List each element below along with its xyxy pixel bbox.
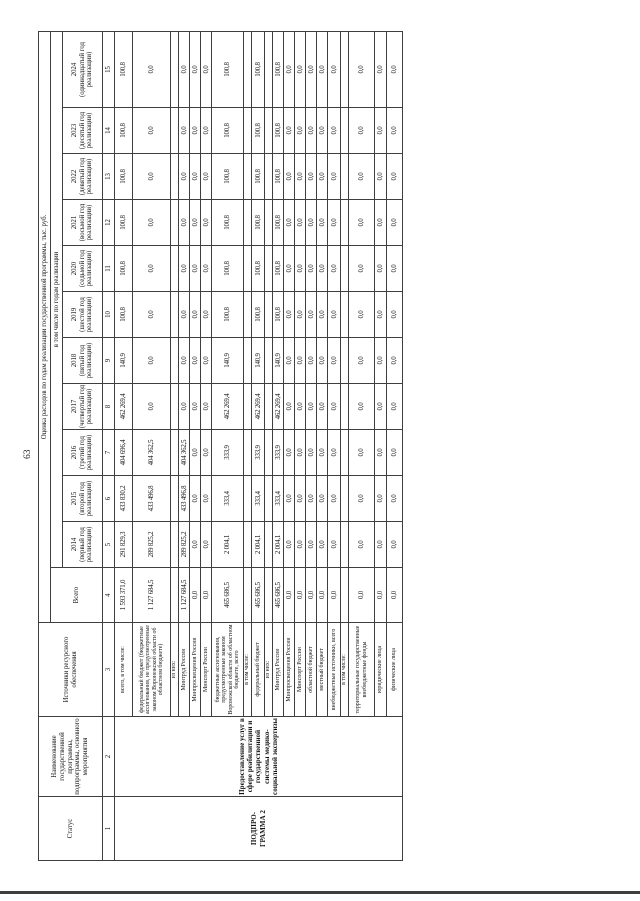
value-cell [244,246,252,292]
value-cell [341,384,349,430]
value-cell: 0,0 [133,338,171,384]
year-header-cell: 2023(десятый год реализации) [63,108,103,154]
column-number-cell: 9 [103,338,115,384]
value-cell: 100,8 [252,108,265,154]
source-label-cell: местный бюджет [317,623,328,717]
column-number-cell: 14 [103,108,115,154]
value-cell: 0,0 [295,108,306,154]
value-cell [244,108,252,154]
table-row: ПОДПРО-ГРАММА 2Предоставление услуг в сф… [115,31,133,860]
value-cell [341,430,349,476]
value-cell: 0,0 [201,200,212,246]
value-cell: 0,0 [306,292,317,338]
value-cell [265,522,273,568]
value-cell: 0,0 [179,154,190,200]
value-cell: 333,4 [252,476,265,522]
value-cell: 0,0 [306,338,317,384]
column-number-cell: 2 [103,717,115,797]
value-cell [265,568,273,623]
value-cell: 0,0 [284,200,295,246]
year-header-cell: 2016(третий год реализации) [63,430,103,476]
value-cell: 0,0 [328,246,341,292]
value-cell [171,108,179,154]
value-cell [244,522,252,568]
value-cell [341,476,349,522]
value-cell: 0,0 [295,338,306,384]
value-cell: 465 686,5 [273,568,284,623]
value-cell: 0,0 [375,108,387,154]
value-cell: 0,0 [349,108,375,154]
value-cell: 0,0 [295,522,306,568]
value-cell: 100,8 [273,292,284,338]
value-cell: 0,0 [328,292,341,338]
value-cell: 140,9 [212,338,244,384]
value-cell: 404 362,5 [133,430,171,476]
value-cell: 0,0 [133,154,171,200]
value-cell: 0,0 [295,154,306,200]
value-cell: 0,0 [284,430,295,476]
column-number-cell: 12 [103,200,115,246]
value-cell: 0,0 [328,200,341,246]
source-label-cell: Минтруд России [179,623,190,717]
value-cell: 0,0 [295,31,306,107]
year-header-cell: 2024(одиннадцатый год реализации) [63,31,103,107]
value-cell: 0,0 [306,476,317,522]
value-cell: 140,9 [115,338,133,384]
value-cell: 0,0 [349,568,375,623]
value-cell: 291 829,3 [115,522,133,568]
value-cell: 100,8 [273,108,284,154]
value-cell: 0,0 [133,31,171,107]
value-cell: 100,8 [273,200,284,246]
value-cell: 100,8 [212,246,244,292]
value-cell: 0,0 [284,522,295,568]
value-cell [265,476,273,522]
value-cell: 2 004,1 [212,522,244,568]
value-cell: 100,8 [115,200,133,246]
value-cell: 333,9 [273,430,284,476]
value-cell: 0,0 [349,200,375,246]
value-cell: 0,0 [317,476,328,522]
value-cell: 0,0 [201,384,212,430]
name-header: Наименование государственной программы, … [39,717,103,797]
source-label-cell: в том числе: [244,623,252,717]
value-cell: 2 004,1 [252,522,265,568]
value-cell: 0,0 [190,246,201,292]
value-cell: 0,0 [179,200,190,246]
value-cell: 289 825,2 [133,522,171,568]
value-cell [244,154,252,200]
value-cell: 0,0 [306,31,317,107]
value-cell: 0,0 [349,31,375,107]
value-cell: 0,0 [349,338,375,384]
source-label-cell: Минтруд России [273,623,284,717]
value-cell: 100,8 [115,108,133,154]
value-cell [171,31,179,107]
value-cell: 465 686,5 [252,568,265,623]
value-cell: 0,0 [375,31,387,107]
value-cell [341,154,349,200]
value-cell: 289 825,2 [179,522,190,568]
year-header-cell: 2017(четвертый год реализации) [63,384,103,430]
value-cell: 0,0 [328,108,341,154]
value-cell: 462 269,4 [115,384,133,430]
value-cell [171,338,179,384]
value-cell: 0,0 [375,200,387,246]
value-cell: 100,8 [212,154,244,200]
value-cell: 0,0 [317,31,328,107]
value-cell: 2 004,1 [273,522,284,568]
source-label-cell: из них: [171,623,179,717]
value-cell: 404 696,4 [115,430,133,476]
value-cell: 100,8 [252,246,265,292]
value-cell: 333,9 [212,430,244,476]
value-cell: 100,8 [212,108,244,154]
value-cell: 0,0 [295,476,306,522]
column-number-cell: 1 [103,797,115,861]
value-cell: 0,0 [190,568,201,623]
value-cell [341,522,349,568]
value-cell: 0,0 [133,108,171,154]
page-bottom-rule [0,891,640,894]
value-cell: 0,0 [317,384,328,430]
value-cell: 0,0 [375,292,387,338]
source-label-cell: из них: [265,623,273,717]
value-cell [341,108,349,154]
value-cell [341,31,349,107]
value-cell: 0,0 [179,246,190,292]
expenses-header: Оценка расходов по годам реализации госу… [39,31,51,622]
value-cell: 0,0 [190,292,201,338]
value-cell: 0,0 [375,338,387,384]
value-cell: 0,0 [284,292,295,338]
value-cell: 100,8 [115,246,133,292]
value-cell: 100,8 [252,292,265,338]
value-cell: 0,0 [375,384,387,430]
value-cell: 0,0 [317,246,328,292]
value-cell: 0,0 [284,31,295,107]
value-cell: 0,0 [295,430,306,476]
value-cell: 0,0 [284,246,295,292]
value-cell [341,292,349,338]
value-cell: 0,0 [201,338,212,384]
value-cell: 0,0 [375,522,387,568]
value-cell: 0,0 [317,292,328,338]
value-cell: 333,4 [273,476,284,522]
value-cell: 0,0 [317,200,328,246]
value-cell: 0,0 [295,200,306,246]
value-cell: 0,0 [349,246,375,292]
including-years-header: в том числе по годам реализации [51,31,63,567]
value-cell [244,476,252,522]
value-cell [341,338,349,384]
value-cell: 0,0 [201,476,212,522]
scanned-page: СтатусНаименование государственной прогр… [0,0,640,901]
value-cell: 462 269,4 [273,384,284,430]
value-cell: 0,0 [387,154,403,200]
source-label-cell: юридические лица [375,623,387,717]
value-cell: 0,0 [201,522,212,568]
value-cell: 0,0 [349,384,375,430]
value-cell [265,200,273,246]
value-cell: 0,0 [306,430,317,476]
status-cell: ПОДПРО-ГРАММА 2 [115,797,403,861]
value-cell: 0,0 [295,292,306,338]
value-cell: 0,0 [317,430,328,476]
year-header-cell: 2019(шестой год реализации) [63,292,103,338]
value-cell [341,246,349,292]
value-cell: 0,0 [284,338,295,384]
value-cell: 0,0 [284,154,295,200]
source-label-cell: областной бюджет [306,623,317,717]
value-cell: 100,8 [115,292,133,338]
value-cell: 462 269,4 [212,384,244,430]
value-cell: 0,0 [349,430,375,476]
value-cell [265,31,273,107]
value-cell: 0,0 [295,246,306,292]
value-cell: 0,0 [201,568,212,623]
value-cell: 0,0 [306,200,317,246]
value-cell: 0,0 [387,31,403,107]
value-cell [171,200,179,246]
value-cell: 0,0 [284,108,295,154]
value-cell: 100,8 [115,31,133,107]
value-cell: 0,0 [306,246,317,292]
column-number-cell: 15 [103,31,115,107]
value-cell: 465 686,5 [212,568,244,623]
value-cell: 100,8 [252,200,265,246]
value-cell: 100,8 [273,246,284,292]
status-header: Статус [39,797,103,861]
program-table: СтатусНаименование государственной прогр… [38,31,403,861]
value-cell: 0,0 [284,476,295,522]
value-cell: 0,0 [201,31,212,107]
value-cell: 0,0 [179,31,190,107]
value-cell: 100,8 [273,31,284,107]
value-cell: 100,8 [252,31,265,107]
value-cell: 0,0 [328,338,341,384]
value-cell: 0,0 [190,154,201,200]
value-cell: 0,0 [328,522,341,568]
value-cell [265,246,273,292]
value-cell: 0,0 [317,154,328,200]
value-cell [265,384,273,430]
value-cell: 0,0 [179,292,190,338]
column-number-cell: 7 [103,430,115,476]
source-label-cell: федеральный бюджет (бюджетные ассигнован… [133,623,171,717]
value-cell: 140,9 [252,338,265,384]
value-cell: 0,0 [328,154,341,200]
value-cell: 0,0 [284,568,295,623]
column-number-cell: 6 [103,476,115,522]
value-cell: 1 127 684,5 [179,568,190,623]
source-label-cell: федеральный бюджет [252,623,265,717]
value-cell [265,108,273,154]
column-number-cell: 5 [103,522,115,568]
value-cell: 0,0 [284,384,295,430]
value-cell: 0,0 [306,568,317,623]
value-cell: 0,0 [349,522,375,568]
value-cell [244,568,252,623]
value-cell [265,430,273,476]
value-cell: 0,0 [387,246,403,292]
value-cell: 433 496,8 [133,476,171,522]
value-cell: 0,0 [190,108,201,154]
source-label-cell: бюджетные ассигнования, предусмотренные … [212,623,244,717]
year-header-cell: 2015(второй год реализации) [63,476,103,522]
value-cell [171,568,179,623]
value-cell: 0,0 [387,522,403,568]
value-cell [171,384,179,430]
value-cell: 1 127 684,5 [133,568,171,623]
value-cell: 0,0 [190,384,201,430]
value-cell: 0,0 [387,200,403,246]
value-cell: 0,0 [349,154,375,200]
value-cell: 0,0 [328,568,341,623]
value-cell: 0,0 [375,246,387,292]
value-cell: 0,0 [190,430,201,476]
value-cell: 0,0 [190,522,201,568]
value-cell: 0,0 [387,108,403,154]
value-cell: 0,0 [306,154,317,200]
program-name-cell: Предоставление услуг в сфере реабилитаци… [115,717,403,797]
value-cell: 0,0 [179,108,190,154]
value-cell: 0,0 [133,384,171,430]
total-header: Всего [51,568,103,623]
value-cell: 100,8 [212,200,244,246]
value-cell [341,568,349,623]
value-cell: 0,0 [375,568,387,623]
source-label-cell: физические лица [387,623,403,717]
value-cell [171,522,179,568]
source-label-cell: Минспорт России [201,623,212,717]
value-cell: 0,0 [349,292,375,338]
year-header-cell: 2018(пятый год реализации) [63,338,103,384]
value-cell [244,200,252,246]
value-cell: 0,0 [133,200,171,246]
value-cell [244,338,252,384]
source-label-cell: внебюджетные источники, всего [328,623,341,717]
value-cell: 0,0 [306,108,317,154]
source-label-cell: всего, в том числе: [115,623,133,717]
value-cell [171,292,179,338]
value-cell: 0,0 [375,430,387,476]
page-number: 63 [23,450,33,460]
column-number-cell: 4 [103,568,115,623]
value-cell: 433 830,2 [115,476,133,522]
column-number-cell: 11 [103,246,115,292]
value-cell: 0,0 [387,384,403,430]
value-cell [265,338,273,384]
value-cell: 0,0 [317,568,328,623]
value-cell: 433 496,8 [179,476,190,522]
value-cell [244,384,252,430]
value-cell: 0,0 [306,522,317,568]
value-cell: 404 362,5 [179,430,190,476]
year-header-cell: 2020(седьмой год реализации) [63,246,103,292]
value-cell: 0,0 [328,31,341,107]
value-cell: 0,0 [201,292,212,338]
value-cell: 1 593 371,0 [115,568,133,623]
value-cell: 0,0 [328,384,341,430]
value-cell: 0,0 [190,476,201,522]
value-cell [244,292,252,338]
value-cell: 462 269,4 [252,384,265,430]
source-label-cell: территориальные государственные внебюдже… [349,623,375,717]
value-cell: 0,0 [295,384,306,430]
value-cell: 0,0 [375,476,387,522]
value-cell: 0,0 [133,246,171,292]
value-cell: 0,0 [387,476,403,522]
value-cell [341,200,349,246]
value-cell: 0,0 [295,568,306,623]
value-cell: 0,0 [387,338,403,384]
value-cell: 333,9 [252,430,265,476]
value-cell: 140,9 [273,338,284,384]
source-label-cell: в том числе: [341,623,349,717]
column-number-cell: 13 [103,154,115,200]
value-cell [171,430,179,476]
value-cell: 0,0 [317,522,328,568]
value-cell: 0,0 [179,384,190,430]
value-cell [244,430,252,476]
source-label-cell: Минспорт России [295,623,306,717]
rotated-table-container: СтатусНаименование государственной прогр… [38,31,403,861]
value-cell: 0,0 [349,476,375,522]
value-cell [171,246,179,292]
value-cell: 100,8 [273,154,284,200]
value-cell: 100,8 [212,292,244,338]
value-cell: 0,0 [133,292,171,338]
column-number-cell: 8 [103,384,115,430]
year-header-cell: 2021(восьмой год реализации) [63,200,103,246]
source-label-cell: Минпросвещения России [284,623,295,717]
value-cell: 0,0 [190,200,201,246]
value-cell: 0,0 [328,430,341,476]
value-cell: 100,8 [252,154,265,200]
value-cell [265,154,273,200]
value-cell: 0,0 [387,292,403,338]
value-cell: 0,0 [190,31,201,107]
value-cell: 0,0 [201,154,212,200]
value-cell: 0,0 [387,568,403,623]
sources-header: Источники ресурсного обеспечения [39,623,103,717]
value-cell: 100,8 [115,154,133,200]
value-cell: 0,0 [317,338,328,384]
value-cell [171,154,179,200]
year-header-cell: 2014(первый год реализации) [63,522,103,568]
value-cell: 0,0 [190,338,201,384]
value-cell: 0,0 [201,108,212,154]
value-cell: 0,0 [328,476,341,522]
column-number-cell: 3 [103,623,115,717]
value-cell: 0,0 [201,430,212,476]
value-cell: 0,0 [317,108,328,154]
value-cell: 100,8 [212,31,244,107]
value-cell: 0,0 [306,384,317,430]
value-cell: 0,0 [375,154,387,200]
value-cell: 0,0 [201,246,212,292]
value-cell: 0,0 [179,338,190,384]
year-header-cell: 2022(девятый год реализации) [63,154,103,200]
value-cell [171,476,179,522]
column-number-cell: 10 [103,292,115,338]
value-cell: 0,0 [387,430,403,476]
value-cell [265,292,273,338]
value-cell: 333,4 [212,476,244,522]
source-label-cell: Минпросвещения России [190,623,201,717]
value-cell [244,31,252,107]
